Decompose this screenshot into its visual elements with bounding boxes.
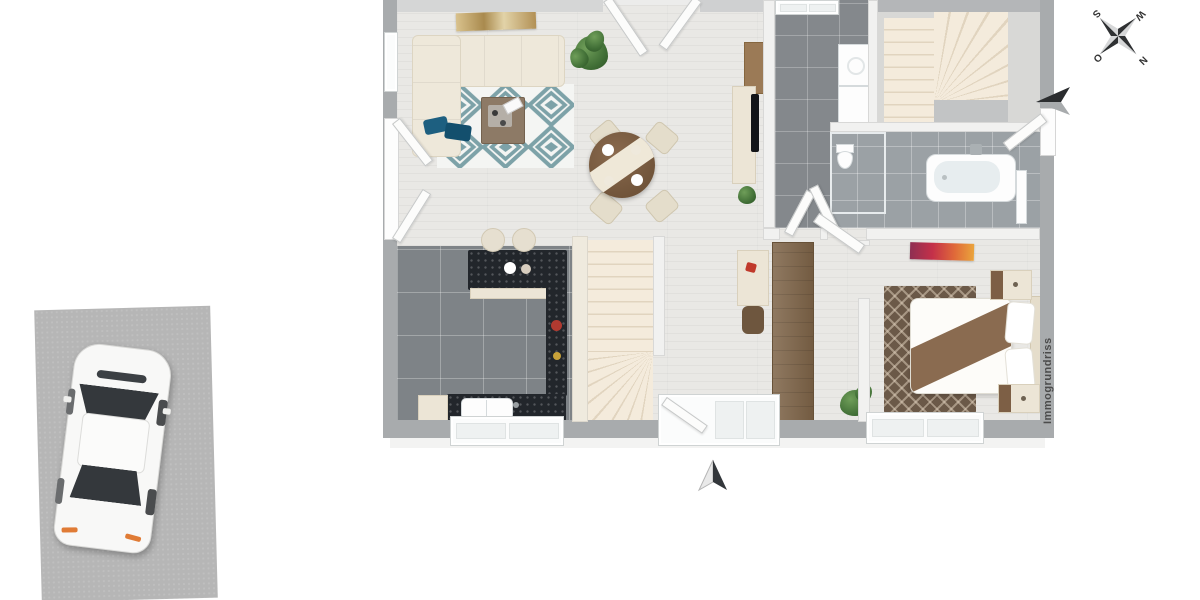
- floorplan-scene: N O S W Immogrundriss: [0, 0, 1200, 600]
- outer-wall-top-c: [868, 0, 1040, 12]
- bar-stool: [512, 228, 536, 252]
- plate: [602, 144, 614, 156]
- upper-staircase-flight: [884, 18, 934, 122]
- throw-pillow: [444, 122, 472, 141]
- window-pane: [780, 4, 807, 12]
- plate: [631, 174, 643, 186]
- bathtub-drain: [942, 175, 947, 180]
- living-door-frame: [384, 118, 399, 240]
- wall-living-utility: [763, 0, 775, 228]
- kitchen-item: [553, 352, 561, 360]
- floor-plan: [0, 0, 1200, 600]
- nightstand: [990, 270, 1032, 300]
- watermark: Immogrundriss: [1042, 336, 1060, 424]
- lower-staircase-winder: [587, 352, 653, 420]
- wall-stairs-hall: [653, 236, 665, 356]
- window-pane: [872, 419, 924, 437]
- bathroom-radiator: [1016, 170, 1027, 224]
- patio-arrow-icon: [694, 458, 732, 492]
- washing-machine: [838, 44, 870, 86]
- plate: [604, 176, 614, 186]
- wall-kitchen-stairs: [572, 236, 588, 422]
- hall-desk: [737, 250, 769, 306]
- wall-bath-bedroom-a: [763, 228, 780, 240]
- wall-stairs-bath: [830, 122, 1040, 132]
- desk-chair: [742, 306, 764, 334]
- wall-art: [456, 11, 537, 32]
- sectional-sofa-top: [447, 35, 565, 87]
- candle: [500, 120, 506, 126]
- bed-pillow: [1004, 301, 1036, 345]
- living-side-window: [384, 32, 398, 92]
- door-pane: [715, 401, 744, 439]
- dining-table: [589, 132, 655, 198]
- door-pane: [746, 401, 775, 439]
- patio-door-threshold: [603, 0, 700, 5]
- plate: [631, 145, 641, 155]
- utility-window: [775, 0, 839, 15]
- window-pane: [927, 419, 979, 437]
- bedroom-window: [866, 412, 984, 444]
- desk-decor: [745, 262, 757, 273]
- bath-faucet: [970, 144, 982, 155]
- island-front-panel: [470, 288, 554, 299]
- bar-stool: [481, 228, 505, 252]
- kitchen-window: [450, 416, 564, 446]
- washer-door: [847, 57, 865, 75]
- island-bowl: [521, 264, 531, 274]
- nightstand: [998, 384, 1040, 413]
- window-pane: [809, 4, 836, 12]
- bed-blanket: [910, 298, 1012, 394]
- nightstand-wood: [999, 385, 1011, 412]
- bathtub: [926, 154, 1016, 202]
- window-pane: [509, 423, 559, 439]
- kitchen-base-cabinet: [418, 395, 448, 423]
- nightstand-wood: [991, 271, 1003, 299]
- bedroom-art: [910, 242, 974, 261]
- wall-hall-bedroom-b: [858, 298, 870, 422]
- rear-patio-door: [658, 394, 780, 446]
- upper-staircase-winder: [934, 8, 1008, 104]
- sink-faucet: [513, 402, 519, 408]
- cooking-pot: [551, 320, 562, 331]
- wall-utility-stairs: [868, 0, 878, 132]
- table-runner: [589, 132, 655, 198]
- nightstand-knob: [1013, 282, 1018, 287]
- nightstand-knob: [1021, 396, 1026, 401]
- candle: [492, 110, 498, 116]
- potted-plant: [738, 186, 756, 204]
- lower-staircase-flight: [587, 240, 653, 352]
- outer-wall-top-a: [397, 0, 603, 12]
- entrance-arrow-icon: [1034, 84, 1072, 118]
- window-pane: [456, 423, 506, 439]
- book: [502, 96, 523, 114]
- island-bowl: [504, 262, 516, 274]
- coffee-table: [481, 97, 525, 144]
- bed-mattress: [910, 298, 1012, 394]
- tv-screen: [751, 94, 759, 152]
- stair-landing: [934, 100, 1008, 122]
- wall-bath-bedroom-c: [866, 228, 1040, 240]
